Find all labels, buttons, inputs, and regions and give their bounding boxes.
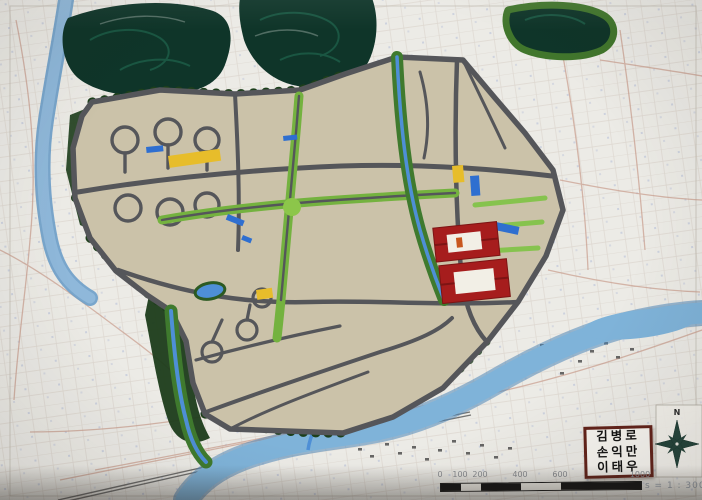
name-plate-row: 김병로: [586, 430, 649, 444]
map-artwork: [0, 0, 702, 500]
name-plate-row: 이태우: [587, 460, 650, 474]
forest-topleft: [63, 3, 231, 96]
name-plate: 김병로 손익만 이태우: [583, 425, 653, 479]
name-plate-row: 손익만: [587, 445, 650, 459]
compass-north-label: N: [668, 408, 686, 417]
forest-topright: [506, 5, 614, 57]
master-plan-photo: 김병로 손익만 이태우 N 0 100 200 400 600 1000 s =…: [0, 0, 702, 500]
